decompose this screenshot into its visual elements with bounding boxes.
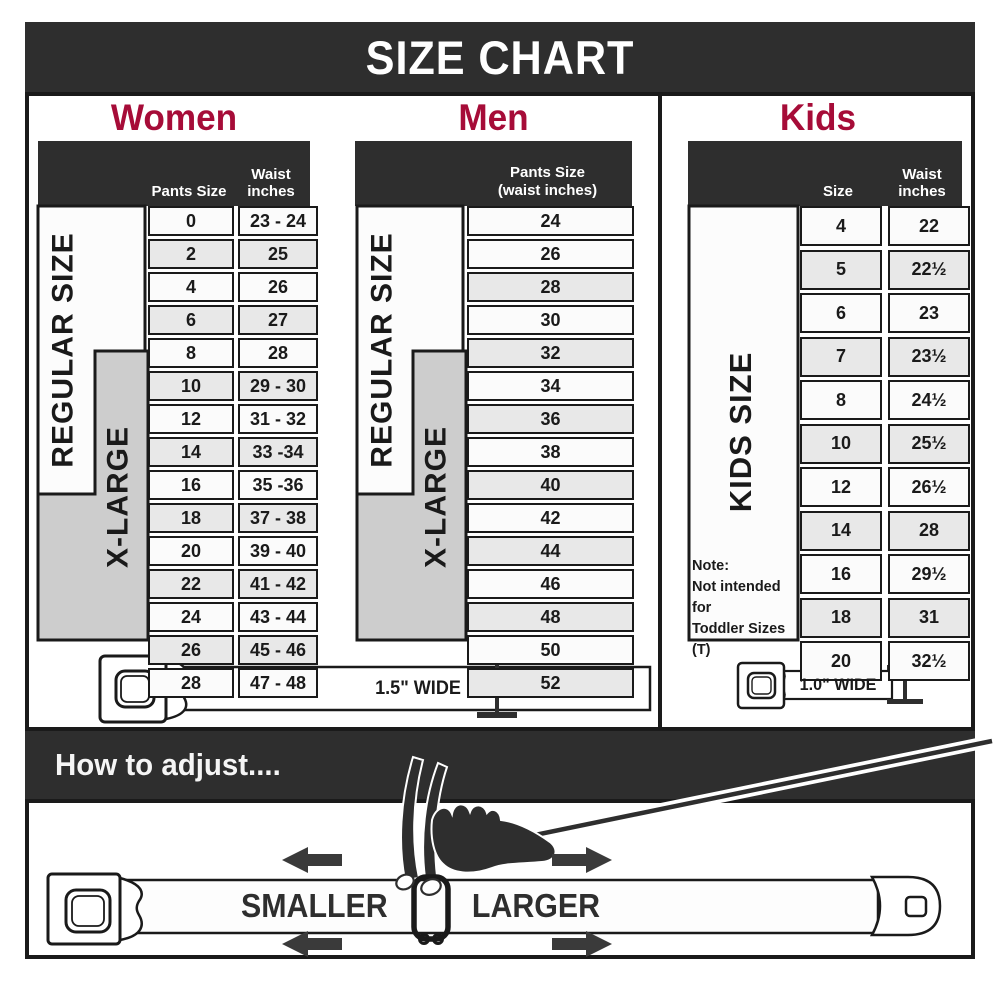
size-cell: 8 bbox=[800, 380, 882, 420]
page-title: SIZE CHART bbox=[366, 30, 635, 85]
men-table: 242628303234363840424446485052 bbox=[467, 206, 634, 698]
table-row: 1231 - 32 bbox=[148, 404, 318, 434]
waist-cell: 32½ bbox=[888, 641, 970, 681]
waist-cell: 27 bbox=[238, 305, 318, 335]
adjust-section-header: How to adjust.... bbox=[25, 731, 975, 799]
table-row: 2039 - 40 bbox=[148, 536, 318, 566]
table-row: 1629½ bbox=[800, 554, 970, 594]
table-row: 824½ bbox=[800, 380, 970, 420]
table-row: 422 bbox=[800, 206, 970, 246]
women-table: 023 - 242254266278281029 - 301231 - 3214… bbox=[148, 206, 318, 698]
pants-size-cell: 10 bbox=[148, 371, 234, 401]
size-cell: 7 bbox=[800, 337, 882, 377]
title-bar: SIZE CHART bbox=[25, 22, 975, 92]
table-row: 36 bbox=[467, 404, 634, 434]
pants-size-cell: 42 bbox=[467, 503, 634, 533]
pants-size-cell: 20 bbox=[148, 536, 234, 566]
table-row: 2847 - 48 bbox=[148, 668, 318, 698]
waist-cell: 28 bbox=[238, 338, 318, 368]
table-row: 30 bbox=[467, 305, 634, 335]
waist-cell: 24½ bbox=[888, 380, 970, 420]
waist-cell: 41 - 42 bbox=[238, 569, 318, 599]
pants-size-cell: 48 bbox=[467, 602, 634, 632]
waist-cell: 26 bbox=[238, 272, 318, 302]
size-cell: 14 bbox=[800, 511, 882, 551]
pants-size-cell: 0 bbox=[148, 206, 234, 236]
table-row: 023 - 24 bbox=[148, 206, 318, 236]
pants-size-cell: 24 bbox=[467, 206, 634, 236]
waist-cell: 35 -36 bbox=[238, 470, 318, 500]
table-row: 1831 bbox=[800, 598, 970, 638]
table-row: 46 bbox=[467, 569, 634, 599]
pants-size-cell: 50 bbox=[467, 635, 634, 665]
pants-size-cell: 52 bbox=[467, 668, 634, 698]
pants-size-cell: 4 bbox=[148, 272, 234, 302]
size-cell: 5 bbox=[800, 250, 882, 290]
waist-cell: 23 - 24 bbox=[238, 206, 318, 236]
pants-size-cell: 22 bbox=[148, 569, 234, 599]
table-row: 24 bbox=[467, 206, 634, 236]
men-heading: Men bbox=[362, 97, 625, 139]
waist-cell: 28 bbox=[888, 511, 970, 551]
table-row: 50 bbox=[467, 635, 634, 665]
table-row: 34 bbox=[467, 371, 634, 401]
kids-table: 422522½623723½824½1025½1226½14281629½183… bbox=[800, 206, 970, 681]
waist-cell: 25 bbox=[238, 239, 318, 269]
kids-note: Note: Not intended for Toddler Sizes (T) bbox=[692, 556, 800, 661]
table-row: 2645 - 46 bbox=[148, 635, 318, 665]
kids-heading: Kids bbox=[679, 97, 956, 139]
pants-size-cell: 32 bbox=[467, 338, 634, 368]
waist-cell: 23 bbox=[888, 293, 970, 333]
pants-size-cell: 26 bbox=[467, 239, 634, 269]
pants-size-cell: 28 bbox=[148, 668, 234, 698]
adjust-illustration-frame bbox=[25, 799, 975, 959]
table-row: 1635 -36 bbox=[148, 470, 318, 500]
table-row: 40 bbox=[467, 470, 634, 500]
table-row: 522½ bbox=[800, 250, 970, 290]
pants-size-cell: 14 bbox=[148, 437, 234, 467]
table-row: 44 bbox=[467, 536, 634, 566]
table-row: 1428 bbox=[800, 511, 970, 551]
women-xlarge-label: X-LARGE bbox=[102, 353, 142, 642]
waist-cell: 31 bbox=[888, 598, 970, 638]
pants-size-cell: 38 bbox=[467, 437, 634, 467]
waist-cell: 22½ bbox=[888, 250, 970, 290]
pants-size-cell: 26 bbox=[148, 635, 234, 665]
table-row: 627 bbox=[148, 305, 318, 335]
men-table-header: Pants Size (waist inches) bbox=[355, 141, 632, 206]
waist-cell: 37 - 38 bbox=[238, 503, 318, 533]
larger-label: LARGER bbox=[467, 887, 605, 925]
table-row: 1029 - 30 bbox=[148, 371, 318, 401]
pants-size-cell: 18 bbox=[148, 503, 234, 533]
men-regular-size-label: REGULAR SIZE bbox=[366, 206, 406, 495]
size-chart-infographic: SIZE CHART Women Men Kids Pants Size Wai… bbox=[0, 0, 1000, 1000]
pants-size-cell: 6 bbox=[148, 305, 234, 335]
pants-size-cell: 36 bbox=[467, 404, 634, 434]
women-pants-size-header: Pants Size bbox=[146, 183, 232, 200]
pants-size-cell: 28 bbox=[467, 272, 634, 302]
table-row: 225 bbox=[148, 239, 318, 269]
table-row: 828 bbox=[148, 338, 318, 368]
waist-cell: 31 - 32 bbox=[238, 404, 318, 434]
women-table-header: Pants Size Waist inches bbox=[38, 141, 310, 206]
table-row: 426 bbox=[148, 272, 318, 302]
table-row: 1433 -34 bbox=[148, 437, 318, 467]
waist-cell: 45 - 46 bbox=[238, 635, 318, 665]
women-heading: Women bbox=[45, 97, 303, 139]
waist-cell: 33 -34 bbox=[238, 437, 318, 467]
waist-cell: 29½ bbox=[888, 554, 970, 594]
table-row: 28 bbox=[467, 272, 634, 302]
waist-cell: 39 - 40 bbox=[238, 536, 318, 566]
table-row: 2443 - 44 bbox=[148, 602, 318, 632]
waist-cell: 29 - 30 bbox=[238, 371, 318, 401]
size-cell: 10 bbox=[800, 424, 882, 464]
table-row: 2241 - 42 bbox=[148, 569, 318, 599]
table-row: 623 bbox=[800, 293, 970, 333]
pants-size-cell: 16 bbox=[148, 470, 234, 500]
pants-size-cell: 44 bbox=[467, 536, 634, 566]
waist-cell: 47 - 48 bbox=[238, 668, 318, 698]
kids-belt-width-label: 1.0" WIDE bbox=[791, 675, 886, 695]
men-xlarge-label: X-LARGE bbox=[420, 353, 460, 642]
table-row: 48 bbox=[467, 602, 634, 632]
table-row: 38 bbox=[467, 437, 634, 467]
size-cell: 18 bbox=[800, 598, 882, 638]
table-row: 1226½ bbox=[800, 467, 970, 507]
waist-cell: 25½ bbox=[888, 424, 970, 464]
table-row: 32 bbox=[467, 338, 634, 368]
pants-size-cell: 40 bbox=[467, 470, 634, 500]
table-row: 1025½ bbox=[800, 424, 970, 464]
kids-waist-header: Waist inches bbox=[882, 166, 962, 200]
size-cell: 6 bbox=[800, 293, 882, 333]
adult-belt-width-label: 1.5" WIDE bbox=[347, 678, 490, 700]
size-cell: 12 bbox=[800, 467, 882, 507]
waist-cell: 26½ bbox=[888, 467, 970, 507]
women-waist-header: Waist inches bbox=[232, 166, 310, 200]
panel-divider bbox=[658, 92, 662, 731]
pants-size-cell: 24 bbox=[148, 602, 234, 632]
adjust-heading: How to adjust.... bbox=[55, 747, 281, 783]
waist-cell: 43 - 44 bbox=[238, 602, 318, 632]
size-cell: 4 bbox=[800, 206, 882, 246]
waist-cell: 22 bbox=[888, 206, 970, 246]
table-row: 723½ bbox=[800, 337, 970, 377]
men-pants-size-header: Pants Size (waist inches) bbox=[465, 164, 630, 200]
table-row: 52 bbox=[467, 668, 634, 698]
size-cell: 16 bbox=[800, 554, 882, 594]
table-row: 42 bbox=[467, 503, 634, 533]
kids-size-label: KIDS SIZE bbox=[723, 312, 763, 552]
women-regular-size-label: REGULAR SIZE bbox=[47, 206, 87, 495]
waist-cell: 23½ bbox=[888, 337, 970, 377]
pants-size-cell: 8 bbox=[148, 338, 234, 368]
kids-table-header: Size Waist inches bbox=[688, 141, 962, 206]
table-row: 26 bbox=[467, 239, 634, 269]
pants-size-cell: 34 bbox=[467, 371, 634, 401]
smaller-label: SMALLER bbox=[241, 887, 379, 925]
pants-size-cell: 30 bbox=[467, 305, 634, 335]
pants-size-cell: 46 bbox=[467, 569, 634, 599]
table-row: 1837 - 38 bbox=[148, 503, 318, 533]
pants-size-cell: 12 bbox=[148, 404, 234, 434]
kids-size-header: Size bbox=[798, 183, 878, 200]
pants-size-cell: 2 bbox=[148, 239, 234, 269]
